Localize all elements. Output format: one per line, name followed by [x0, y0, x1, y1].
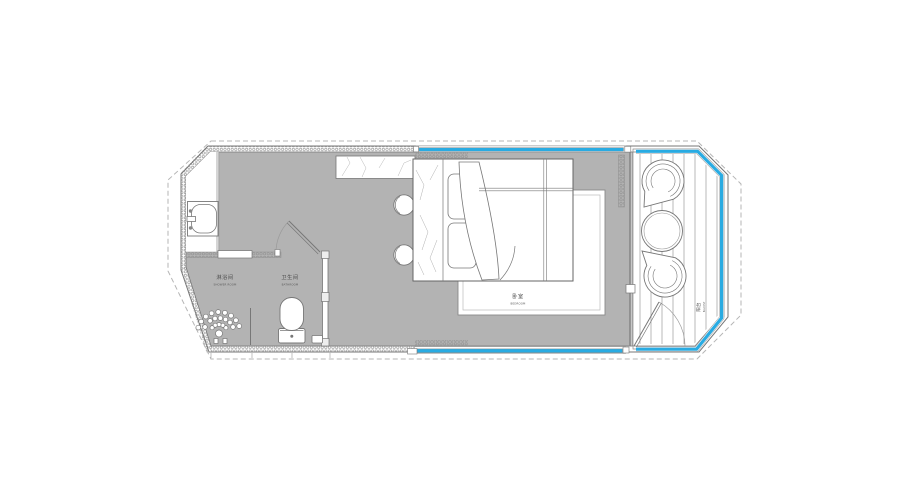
bed — [413, 159, 573, 281]
room-label-bathroom: 卫生间 BATHROOM — [281, 273, 299, 287]
floor-plan-canvas: 淋浴间 SHOWER ROOM 卫生间 BATHROOM 卧室 BEDROOM … — [0, 0, 900, 500]
bathroom-wall-counter — [218, 251, 252, 258]
room-label-shower: 淋浴间 SHOWER ROOM — [214, 273, 238, 287]
room-label-balcony: 阳台 BALCONY — [695, 301, 706, 312]
window-sill-hatch-bottom — [415, 340, 468, 346]
window-bottom — [408, 347, 630, 354]
svg-text:卧室: 卧室 — [512, 292, 524, 300]
floor-drain — [312, 336, 323, 344]
svg-text:BALCONY: BALCONY — [703, 301, 706, 312]
deck-door-frame — [626, 285, 635, 294]
bedside-stool — [394, 195, 414, 215]
window-sill-hatch-top — [415, 153, 468, 160]
svg-text:SHOWER ROOM: SHOWER ROOM — [214, 283, 238, 287]
svg-text:淋浴间: 淋浴间 — [216, 273, 233, 281]
bedside-stool — [394, 245, 414, 265]
svg-text:阳台: 阳台 — [695, 302, 702, 312]
svg-text:BATHROOM: BATHROOM — [282, 283, 299, 287]
svg-text:卫生间: 卫生间 — [281, 273, 298, 281]
toilet-icon — [279, 298, 306, 344]
dimension-ticks — [211, 353, 330, 358]
svg-text:BEDROOM: BEDROOM — [510, 302, 526, 306]
desk-counter — [336, 156, 415, 179]
sink-icon — [187, 202, 218, 237]
room-label-bedroom: 卧室 BEDROOM — [510, 292, 526, 306]
deck-table — [642, 211, 683, 252]
floor-plan: 淋浴间 SHOWER ROOM 卫生间 BATHROOM 卧室 BEDROOM … — [0, 0, 900, 500]
window-top — [414, 146, 631, 152]
